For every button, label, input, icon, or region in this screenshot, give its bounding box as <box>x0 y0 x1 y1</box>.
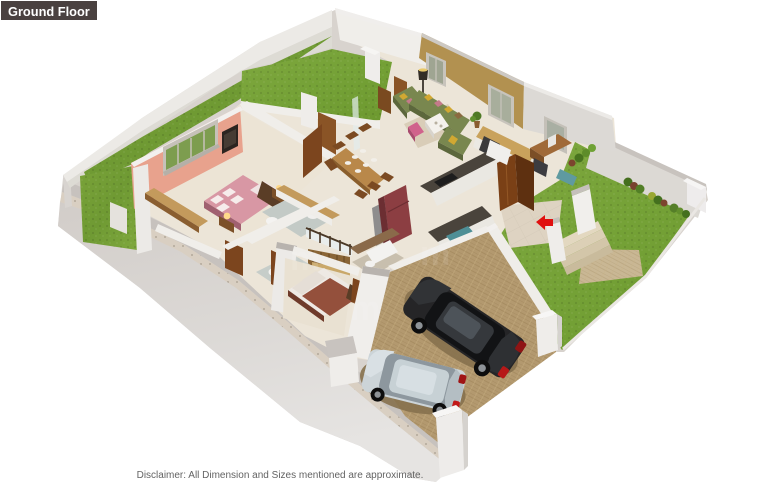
svg-text:Ground Floor: Ground Floor <box>8 4 90 19</box>
svg-text:Disclaimer: All Dimension and: Disclaimer: All Dimension and Sizes ment… <box>137 470 424 481</box>
svg-text:m: m <box>290 240 320 278</box>
svg-text:m: m <box>350 290 380 328</box>
svg-text:m: m <box>420 235 450 273</box>
